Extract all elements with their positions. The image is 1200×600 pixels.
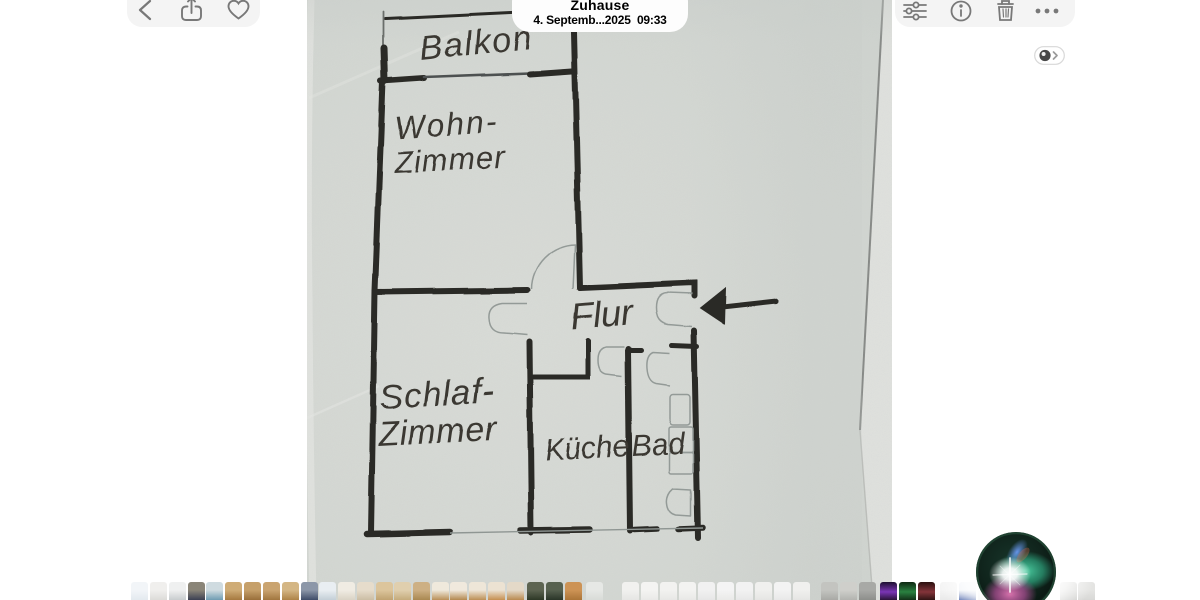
svg-text:Küche: Küche bbox=[544, 430, 631, 467]
svg-text:Zimmer: Zimmer bbox=[393, 139, 507, 180]
svg-text:Flur: Flur bbox=[569, 292, 636, 338]
svg-text:Bad: Bad bbox=[631, 427, 687, 463]
svg-text:Zimmer: Zimmer bbox=[376, 410, 498, 454]
